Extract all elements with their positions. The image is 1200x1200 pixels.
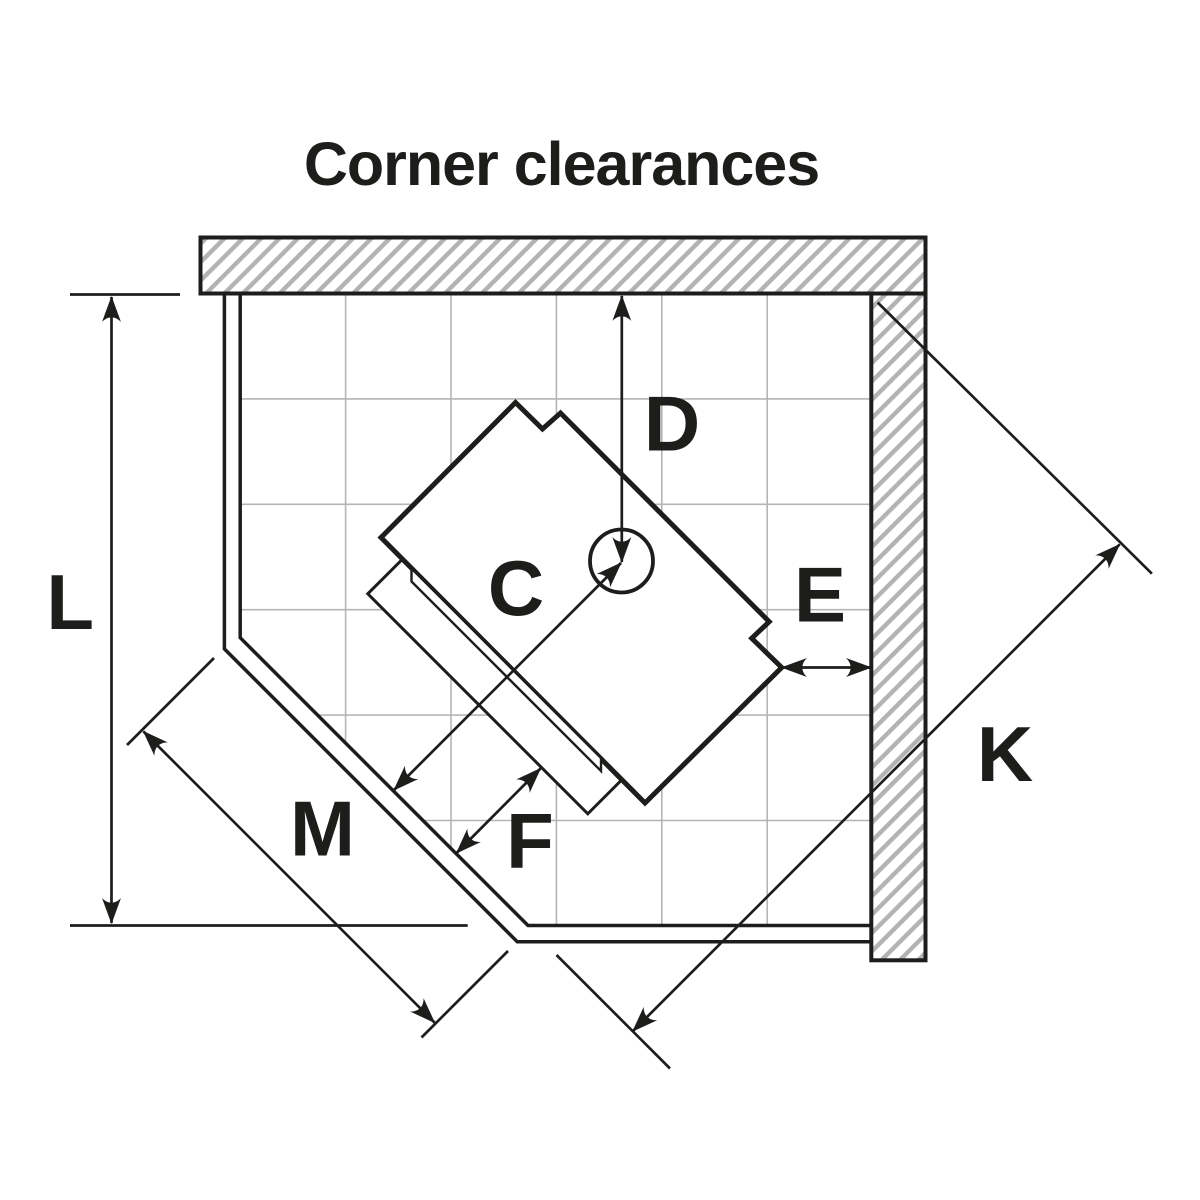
svg-text:L: L	[46, 558, 94, 646]
svg-text:D: D	[644, 379, 700, 467]
svg-text:C: C	[488, 544, 544, 632]
svg-text:F: F	[506, 797, 554, 885]
svg-text:K: K	[977, 710, 1033, 798]
svg-text:Corner clearances: Corner clearances	[304, 130, 819, 198]
svg-text:E: E	[794, 551, 846, 639]
svg-text:M: M	[290, 785, 355, 873]
